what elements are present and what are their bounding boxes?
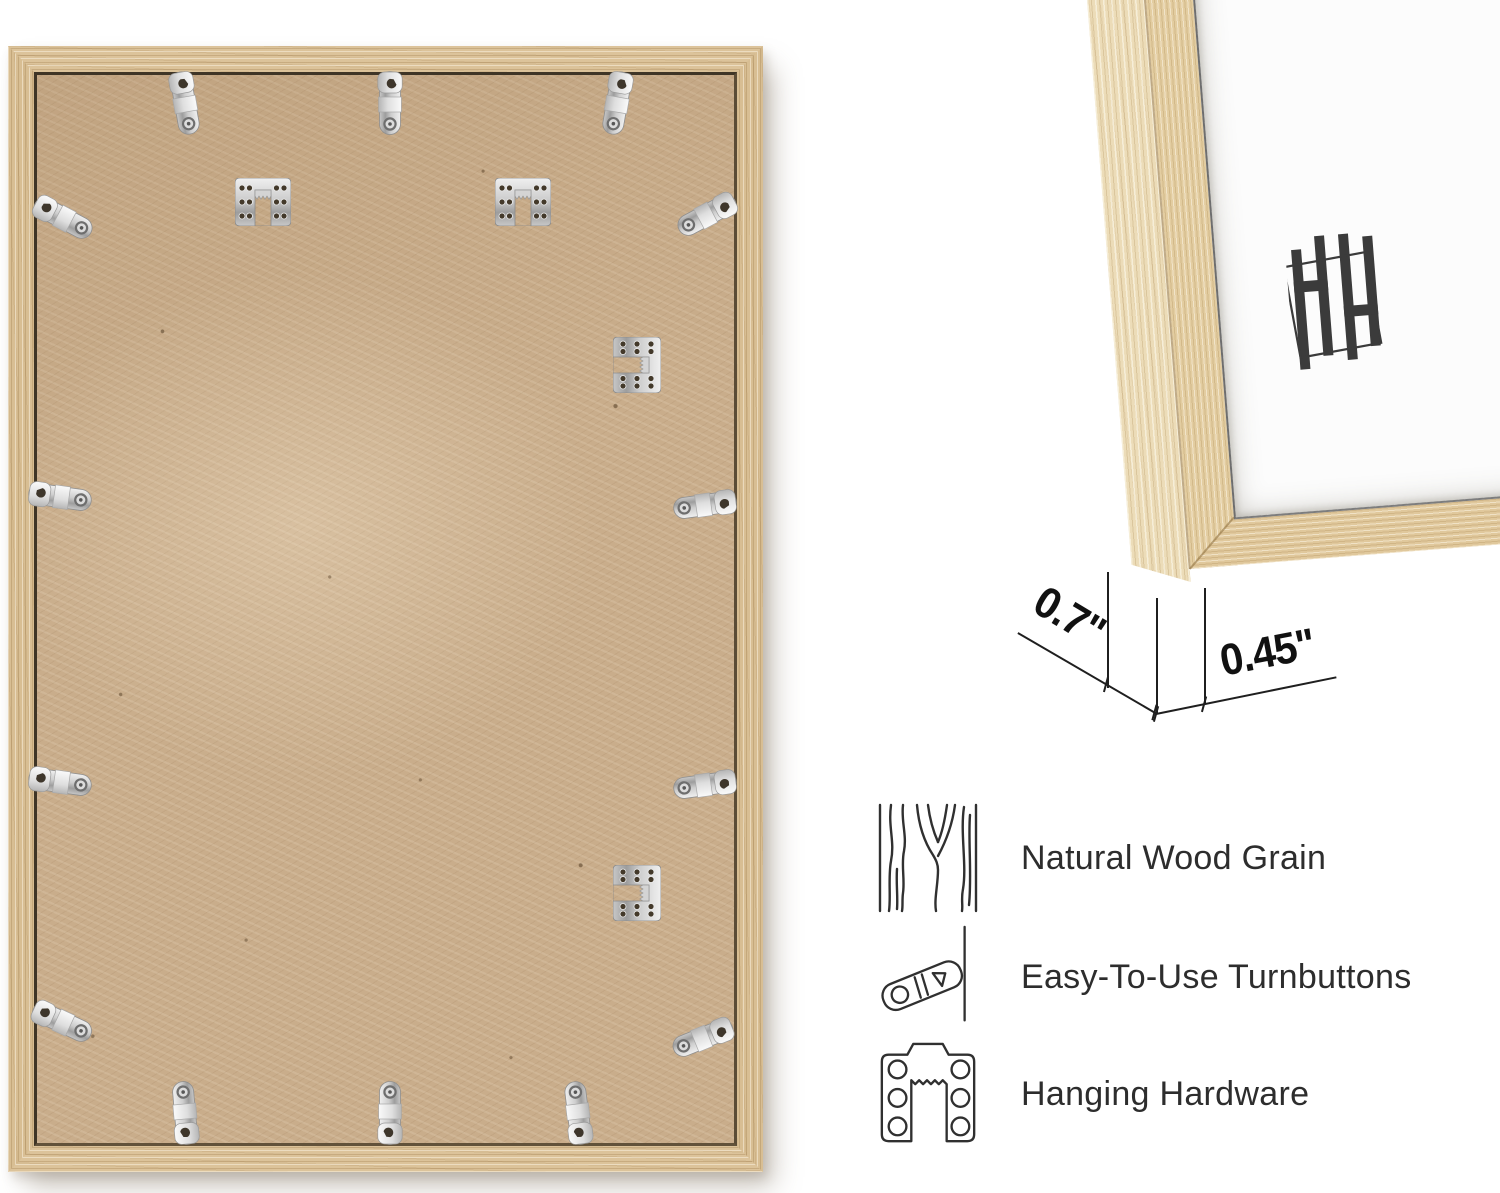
backing-board — [34, 72, 737, 1146]
sawtooth-hanger — [613, 865, 661, 921]
feature-label: Hanging Hardware — [1021, 1075, 1309, 1114]
hanging-hardware-icon — [875, 1039, 981, 1149]
turnbutton-icon — [875, 922, 981, 1032]
feature-row-turnbuttons: Easy-To-Use Turnbuttons — [875, 922, 1412, 1032]
sawtooth-hanger — [235, 178, 291, 226]
frame-back-photo — [8, 46, 763, 1172]
hh-logo — [1284, 229, 1386, 372]
sawtooth-hanger — [613, 337, 661, 393]
feature-label: Natural Wood Grain — [1021, 839, 1326, 878]
dimension-tick — [1201, 696, 1207, 712]
dimension-extension-line — [1156, 598, 1158, 714]
turnbutton — [377, 71, 403, 135]
depth-dimension-label: 0.7" — [1012, 569, 1126, 665]
sawtooth-hanger — [495, 178, 551, 226]
product-infographic: 0.7" 0.45" Natural Wood Grain — [0, 0, 1500, 1193]
feature-label: Easy-To-Use Turnbuttons — [1021, 958, 1412, 997]
wood-grain-icon — [875, 803, 981, 913]
turnbutton — [377, 1081, 403, 1145]
feature-row-wood-grain: Natural Wood Grain — [875, 803, 1326, 913]
feature-row-hardware: Hanging Hardware — [875, 1039, 1309, 1149]
corner-detail-photo — [1064, 0, 1500, 663]
turnbutton — [169, 1080, 200, 1146]
dimension-tick — [1103, 676, 1109, 692]
